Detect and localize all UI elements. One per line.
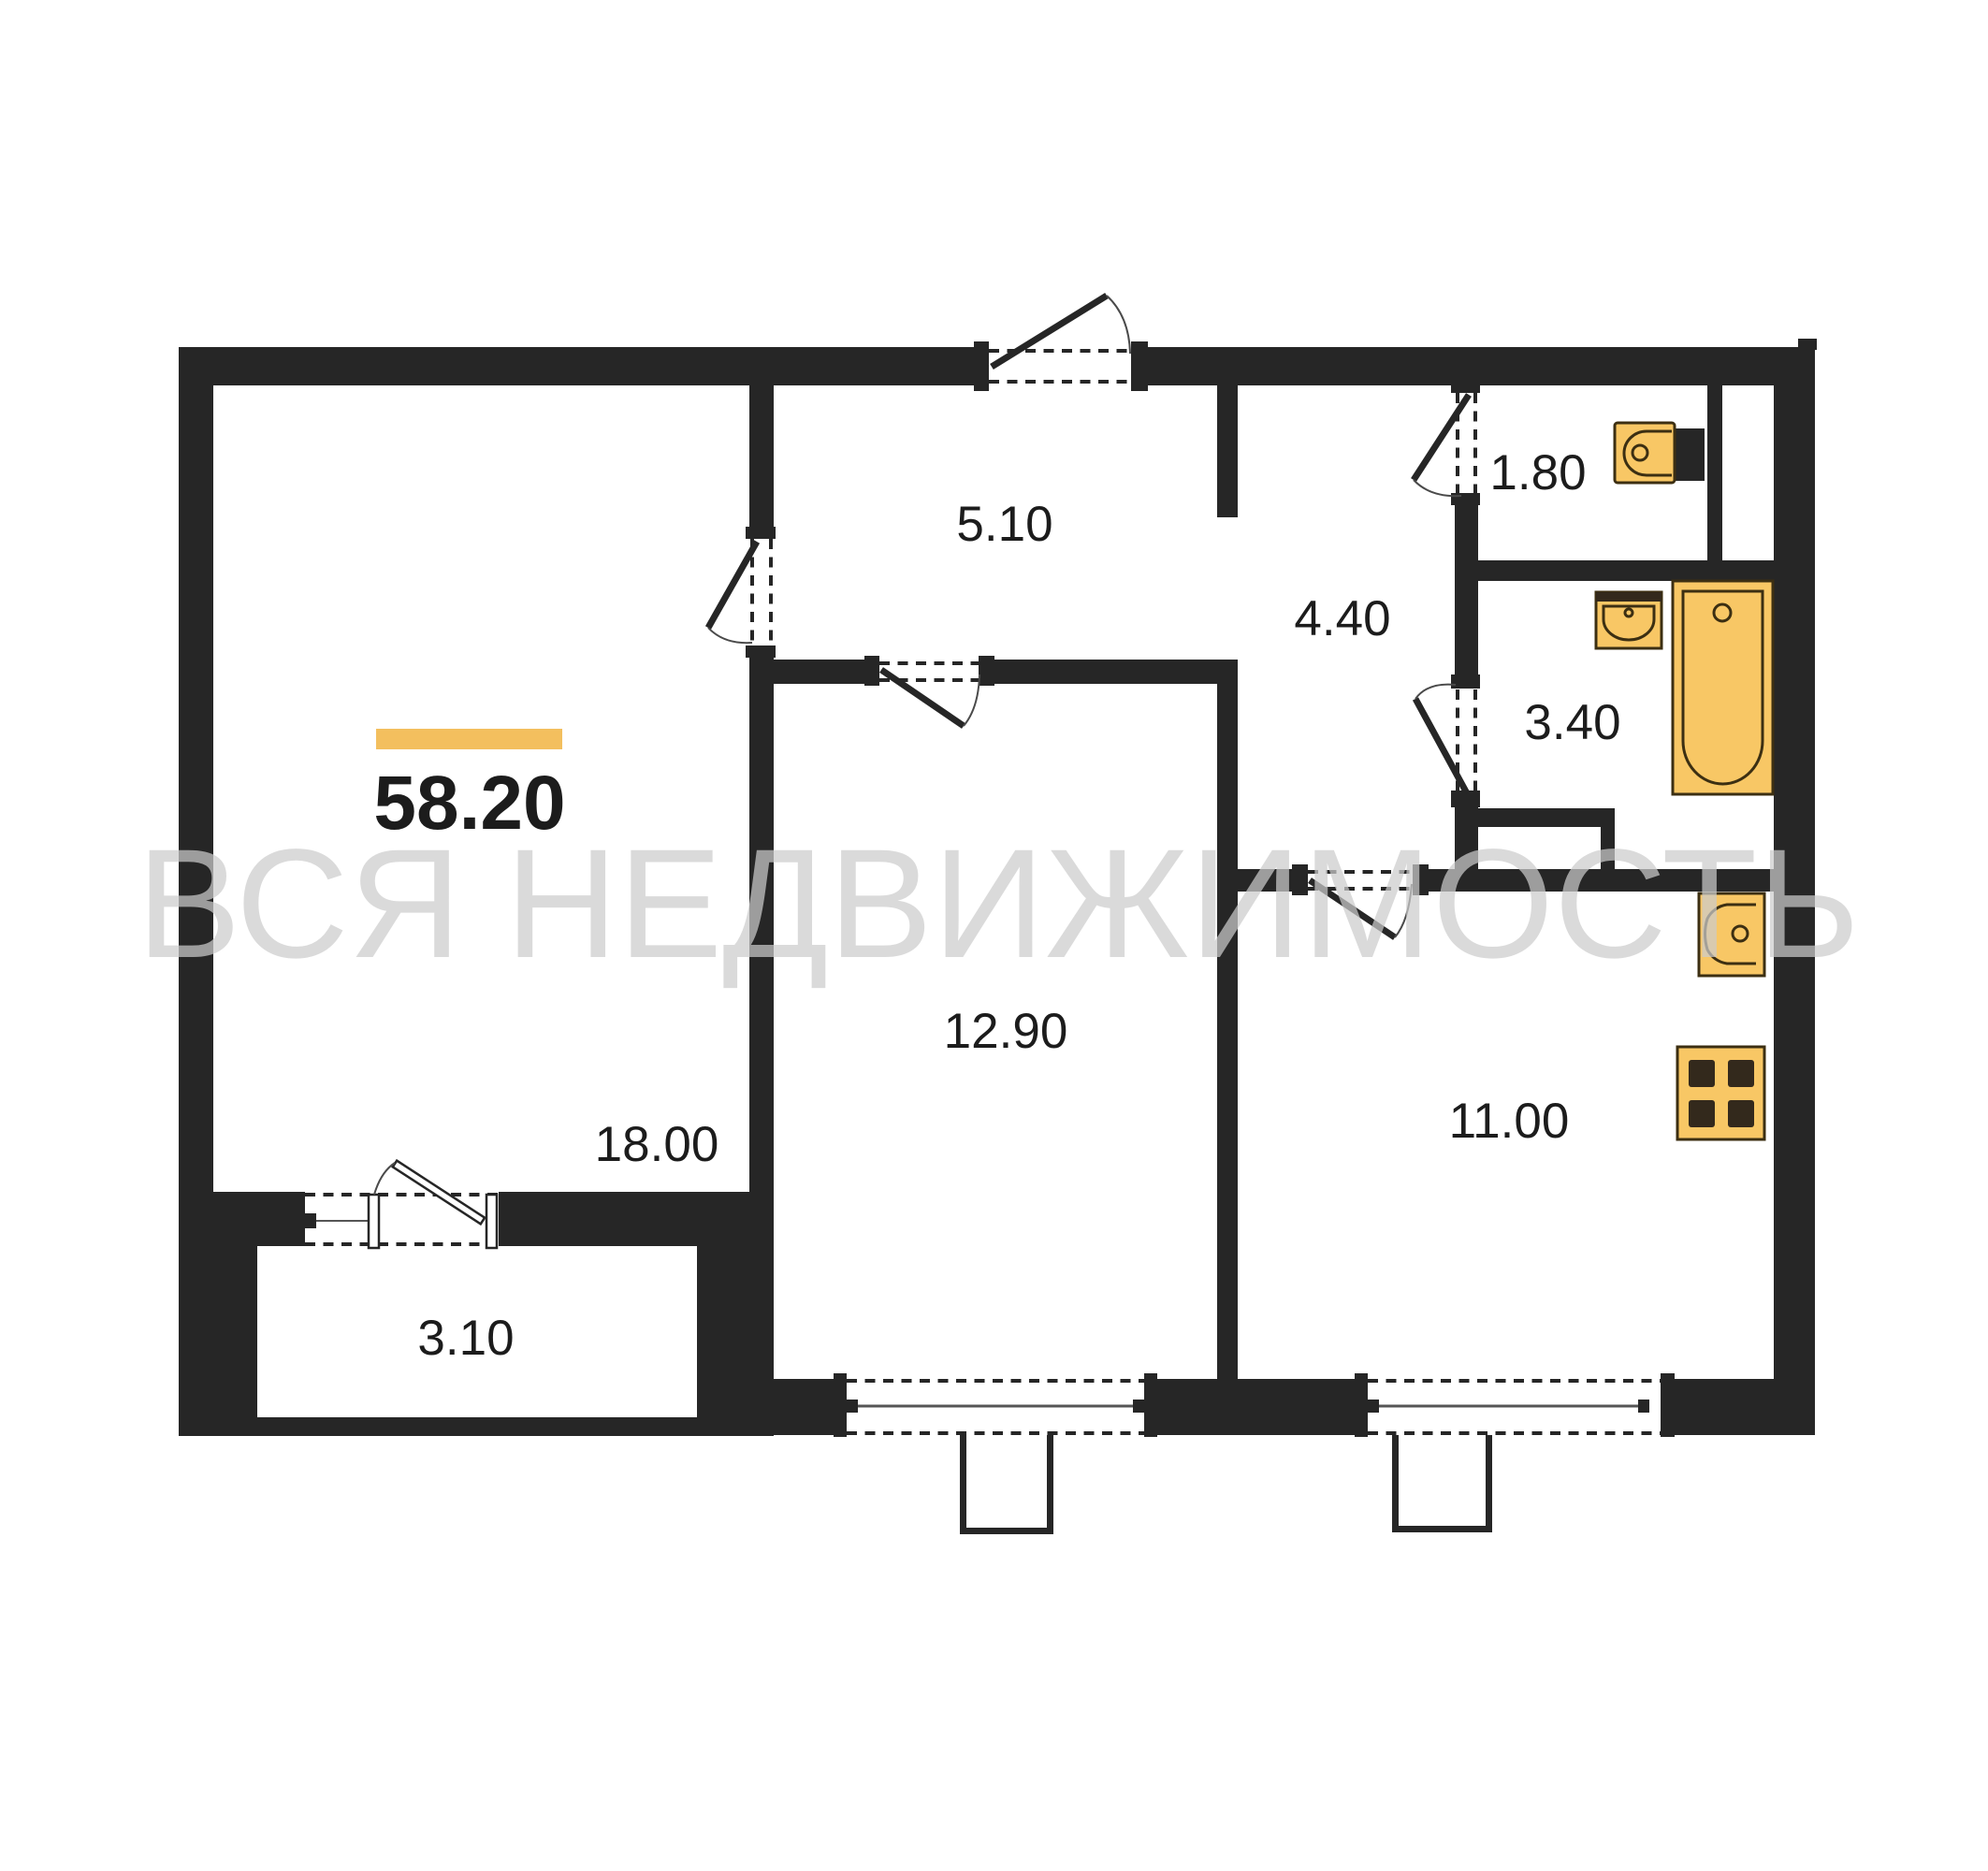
svg-text:ВСЯ НЕДВИЖИМОСТЬ: ВСЯ НЕДВИЖИМОСТЬ — [137, 818, 1860, 991]
svg-text:11.00: 11.00 — [1449, 1094, 1570, 1149]
svg-text:3.10: 3.10 — [417, 1311, 514, 1366]
svg-text:3.40: 3.40 — [1524, 695, 1620, 750]
svg-text:12.90: 12.90 — [944, 1004, 1068, 1059]
svg-text:1.80: 1.80 — [1489, 445, 1586, 500]
svg-text:18.00: 18.00 — [595, 1117, 719, 1172]
svg-text:4.40: 4.40 — [1294, 591, 1390, 646]
svg-text:5.10: 5.10 — [956, 497, 1052, 552]
